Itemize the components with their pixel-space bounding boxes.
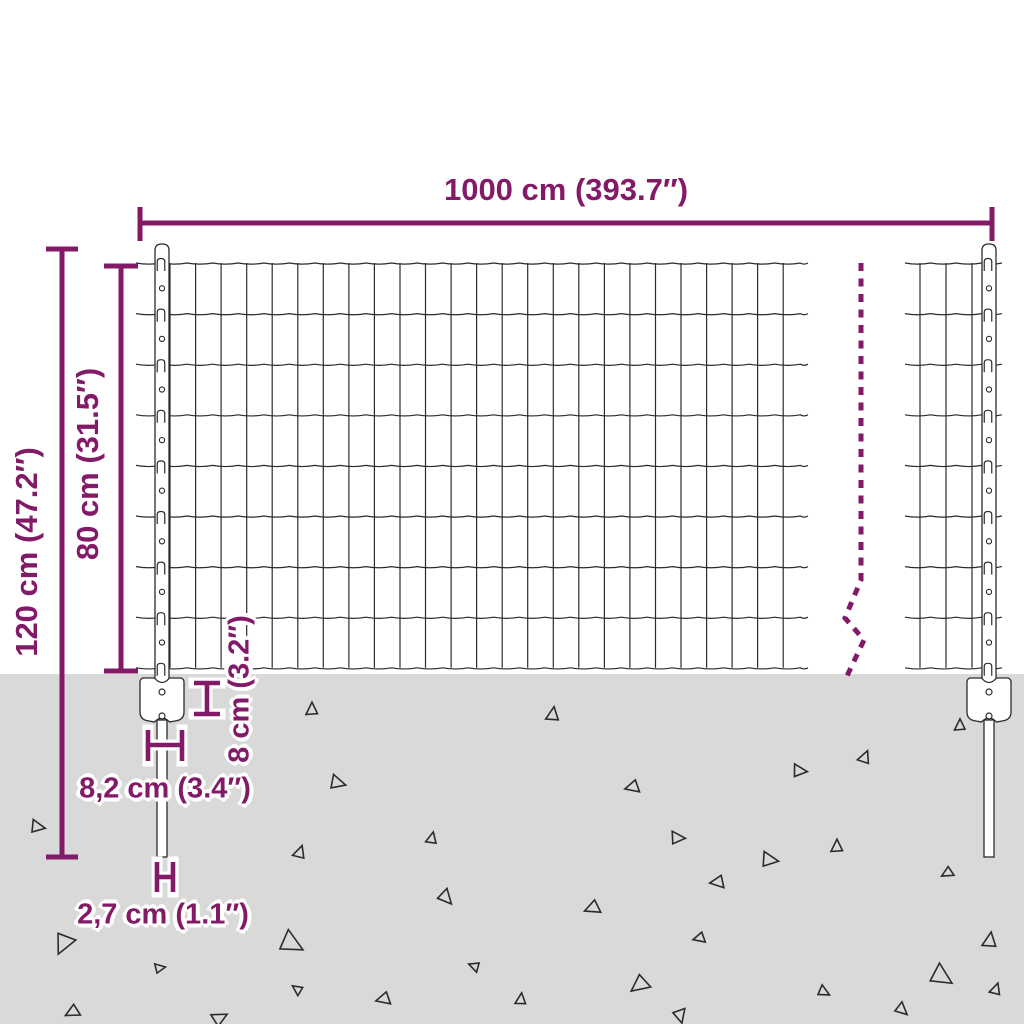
- post-hole: [986, 286, 991, 291]
- post-hole: [986, 488, 991, 493]
- dimension-label-total-height: 120 cm (47.2″): [9, 447, 45, 657]
- wire-clip: [157, 309, 165, 322]
- post-hole: [986, 387, 991, 392]
- wire-clip: [984, 259, 992, 272]
- post-hole: [159, 589, 164, 594]
- post-hole: [159, 488, 164, 493]
- fence-diagram-drawing: [0, 0, 1024, 1024]
- wire-clip: [157, 461, 165, 474]
- post-hole: [986, 640, 991, 645]
- wire-clip: [984, 309, 992, 322]
- wire-clip: [984, 512, 992, 525]
- wire-clip: [984, 461, 992, 474]
- dimension-label-spike-width: 2,7 cm (1.1″): [77, 899, 249, 932]
- post-hole: [986, 336, 991, 341]
- post-hole: [159, 640, 164, 645]
- dimension-label-panel-height: 80 cm (31.5″): [70, 368, 106, 560]
- post-hole: [159, 336, 164, 341]
- wire-clip: [157, 512, 165, 525]
- post-hole: [986, 589, 991, 594]
- ground: [0, 674, 1024, 1024]
- wire-clip: [157, 360, 165, 373]
- post-ground-spike: [984, 720, 994, 857]
- wire-clip: [157, 663, 165, 676]
- wire-clip: [157, 562, 165, 575]
- anchor-plate-hole: [986, 713, 992, 719]
- wire-clip: [157, 259, 165, 272]
- wire-clip: [984, 613, 992, 626]
- wire-clip: [984, 410, 992, 423]
- dimension-label-anchor-plate-height: 8 cm (3.2″): [224, 615, 257, 763]
- post-hole: [159, 387, 164, 392]
- wire-clip: [157, 613, 165, 626]
- post-hole: [159, 438, 164, 443]
- wire-clip: [984, 562, 992, 575]
- post-hole: [159, 539, 164, 544]
- wire-clip: [984, 663, 992, 676]
- wire-clip: [984, 360, 992, 373]
- dimension-label-total-width: 1000 cm (393.7″): [444, 172, 688, 208]
- post-hole: [986, 539, 991, 544]
- break-line-dashed: [845, 263, 864, 676]
- fence-dimension-diagram: 1000 cm (393.7″) 120 cm (47.2″) 80 cm (3…: [0, 0, 1024, 1024]
- fence-mesh: [136, 263, 1002, 669]
- post-hole: [159, 286, 164, 291]
- post-hole: [986, 438, 991, 443]
- anchor-plate-hole: [159, 689, 165, 695]
- anchor-plate-hole: [986, 689, 992, 695]
- dimension-label-anchor-plate-width: 8,2 cm (3.4″): [79, 773, 251, 806]
- wire-clip: [157, 410, 165, 423]
- anchor-plate-hole: [159, 713, 165, 719]
